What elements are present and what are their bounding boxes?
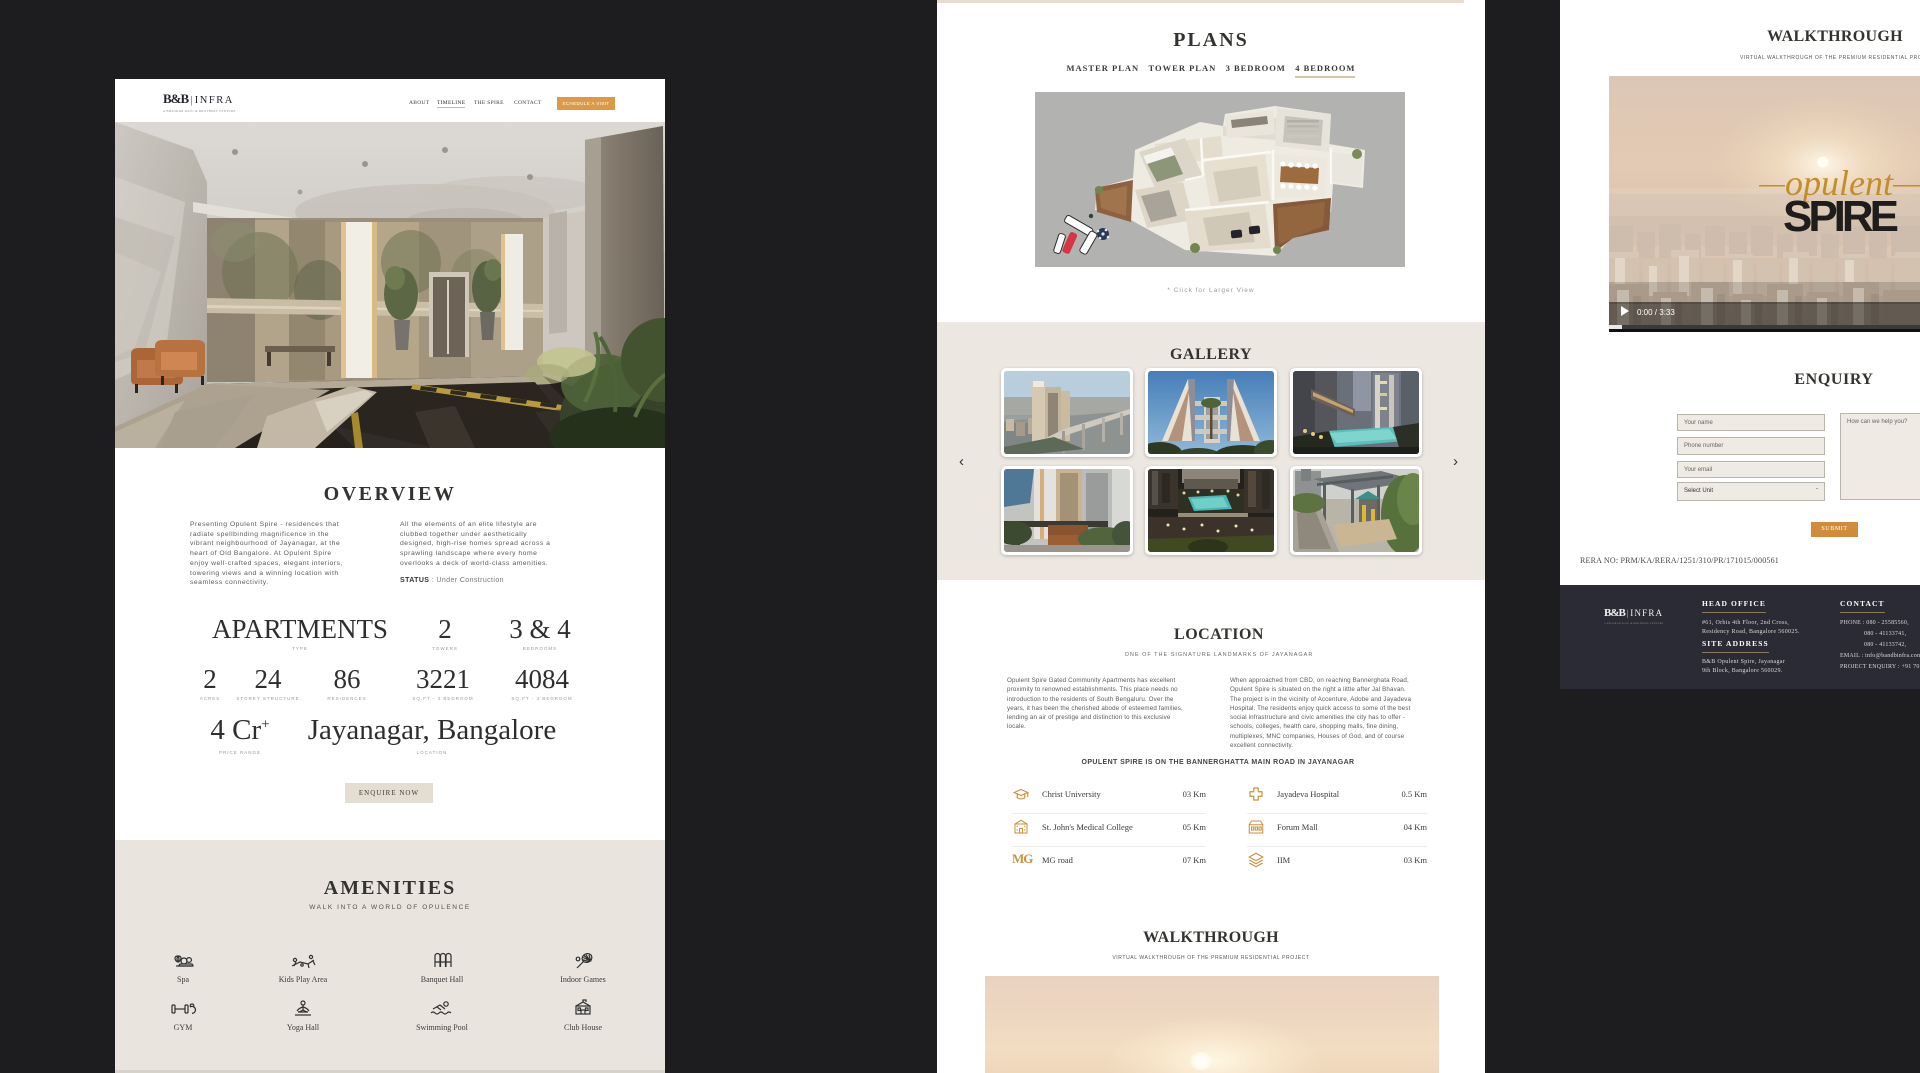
svg-text:SPIRE: SPIRE	[1783, 192, 1898, 241]
svg-text:0:00 / 3:33: 0:00 / 3:33	[1637, 308, 1675, 317]
